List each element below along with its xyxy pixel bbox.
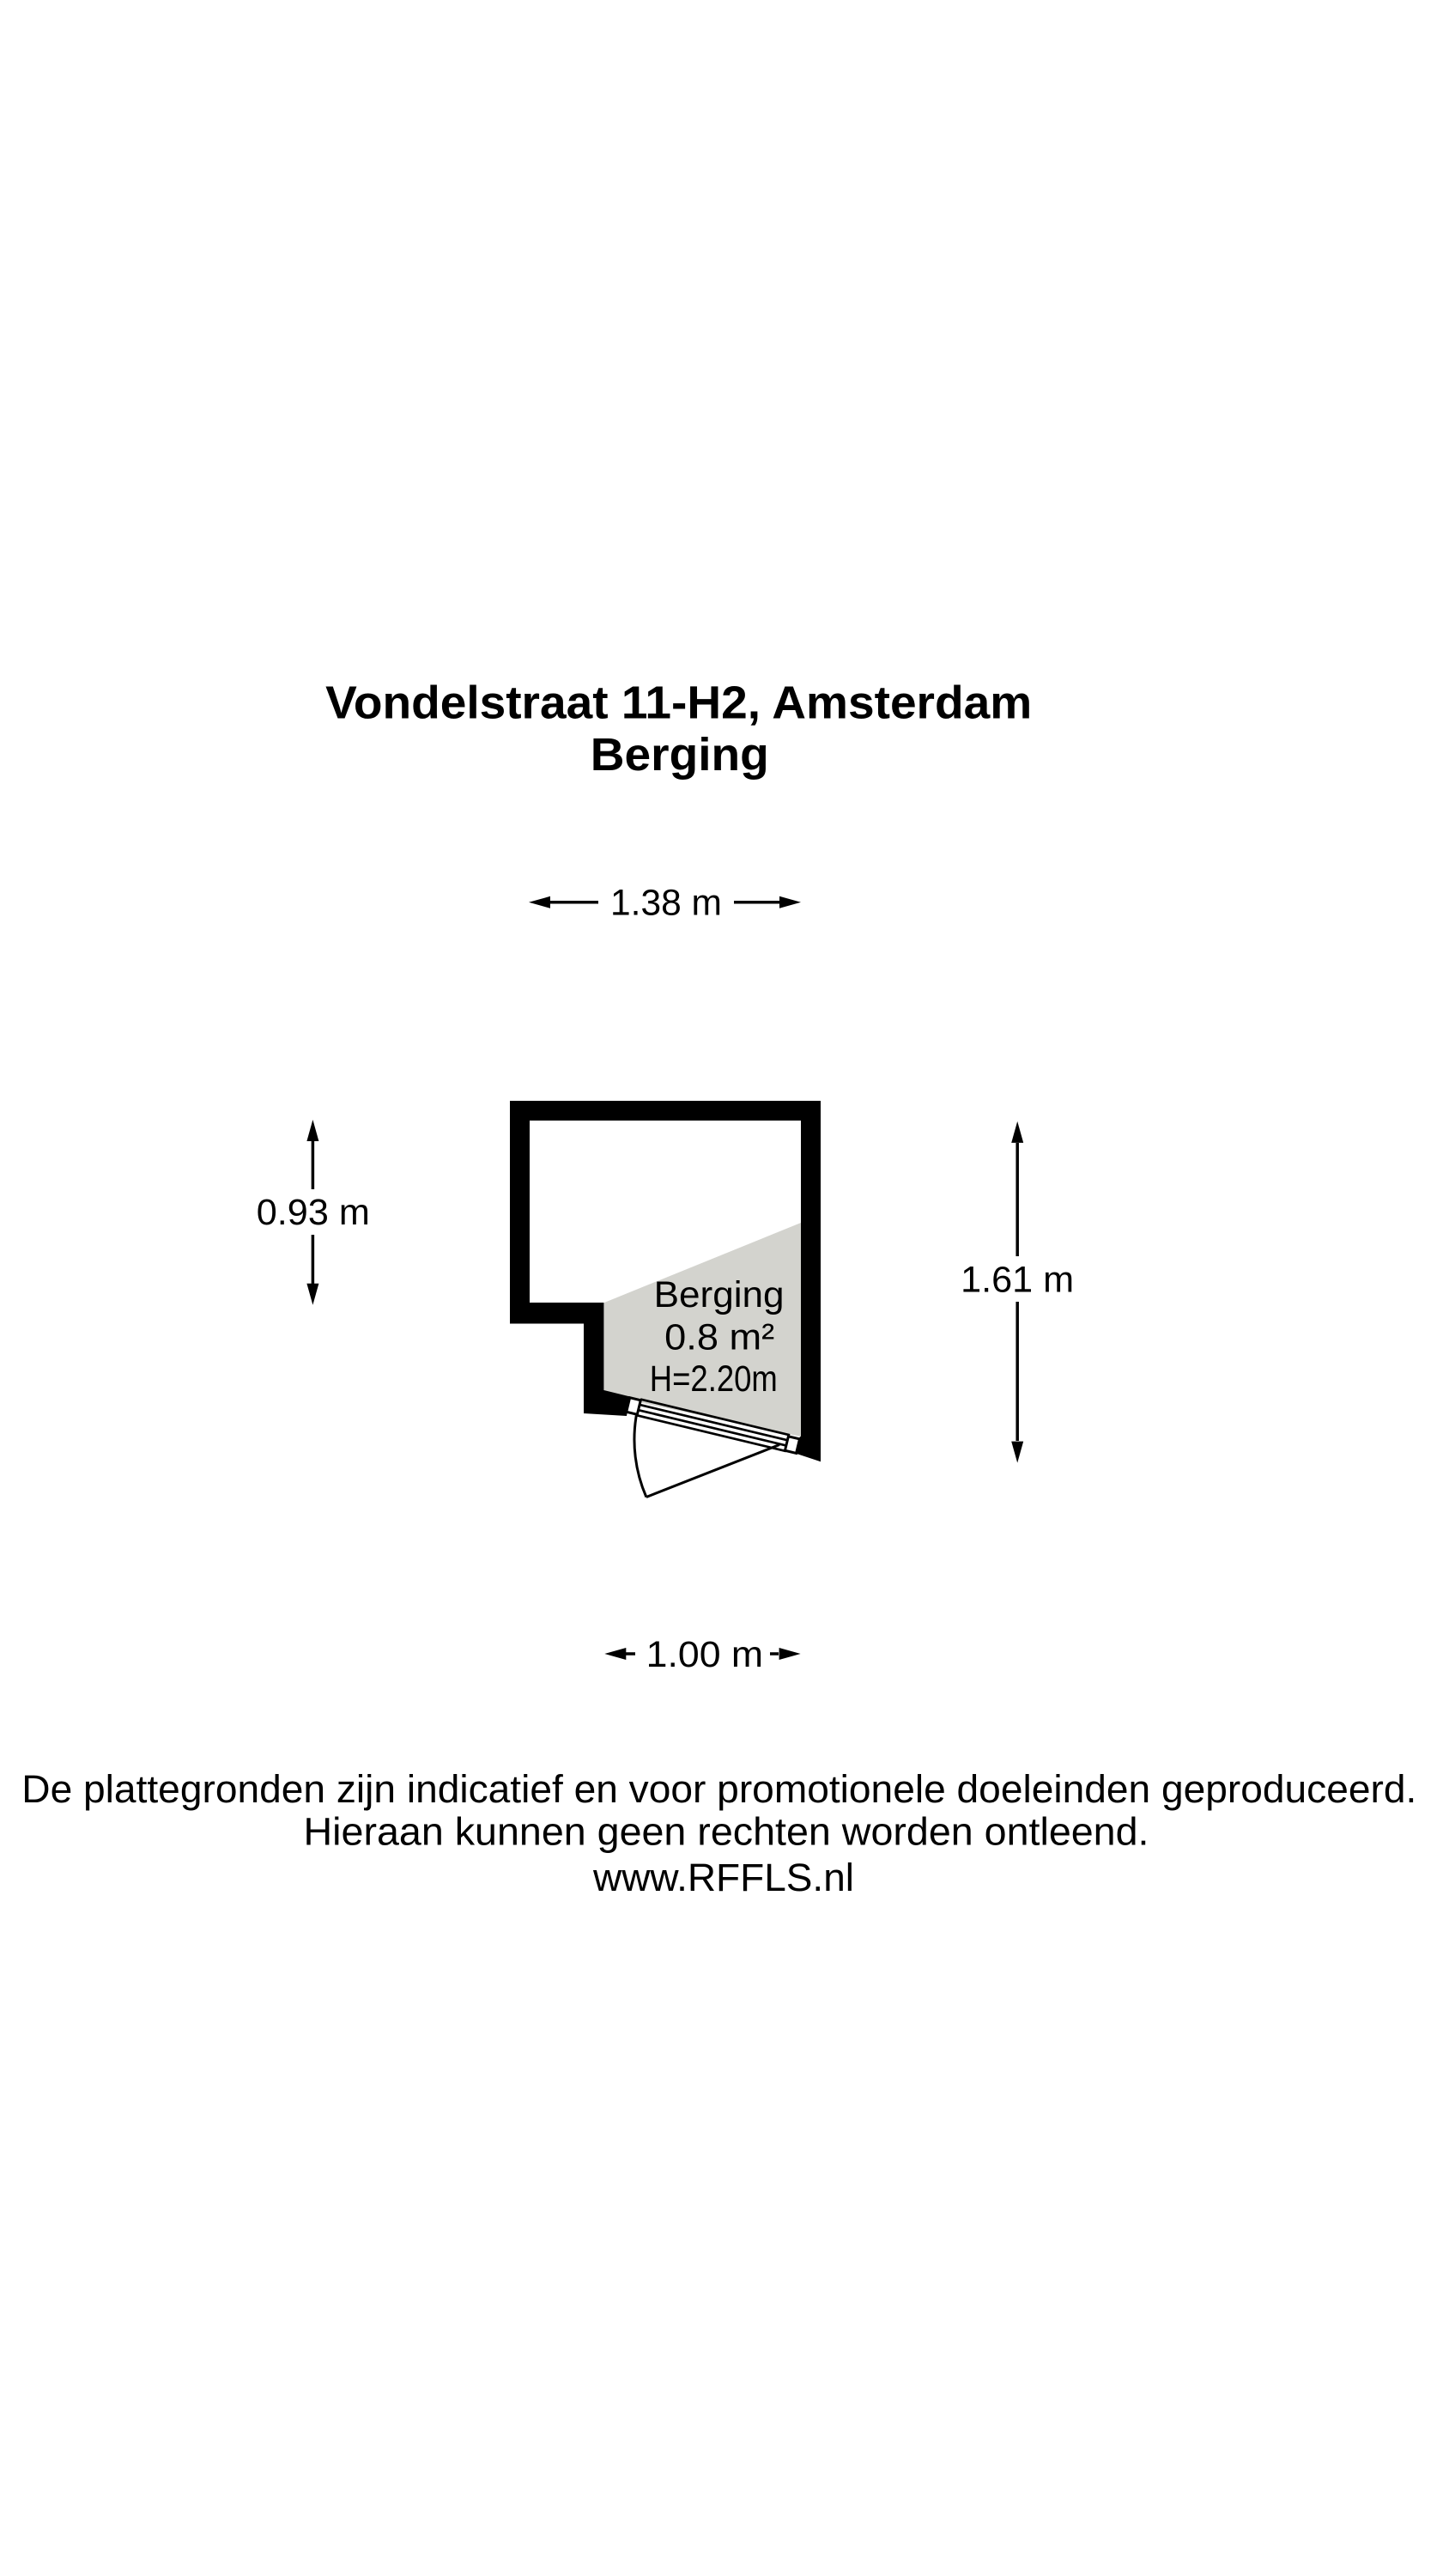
svg-text:1.00 m: 1.00 m	[646, 1634, 763, 1675]
svg-text:1.38 m: 1.38 m	[610, 882, 722, 923]
svg-text:Hieraan kunnen geen rechten wo: Hieraan kunnen geen rechten worden ontle…	[304, 1810, 1149, 1854]
svg-text:0.93 m: 0.93 m	[257, 1192, 370, 1233]
svg-text:0.8 m²: 0.8 m²	[664, 1317, 774, 1358]
svg-text:Berging: Berging	[591, 729, 769, 781]
svg-text:Berging: Berging	[654, 1274, 785, 1315]
svg-text:www.RFFLS.nl: www.RFFLS.nl	[592, 1856, 854, 1899]
svg-text:Vondelstraat 11-H2, Amsterdam: Vondelstraat 11-H2, Amsterdam	[325, 677, 1032, 729]
svg-text:1.61 m: 1.61 m	[961, 1260, 1074, 1301]
svg-text:H=2.20m: H=2.20m	[650, 1358, 778, 1400]
svg-text:De plattegronden zijn indicati: De plattegronden zijn indicatief en voor…	[21, 1767, 1416, 1811]
